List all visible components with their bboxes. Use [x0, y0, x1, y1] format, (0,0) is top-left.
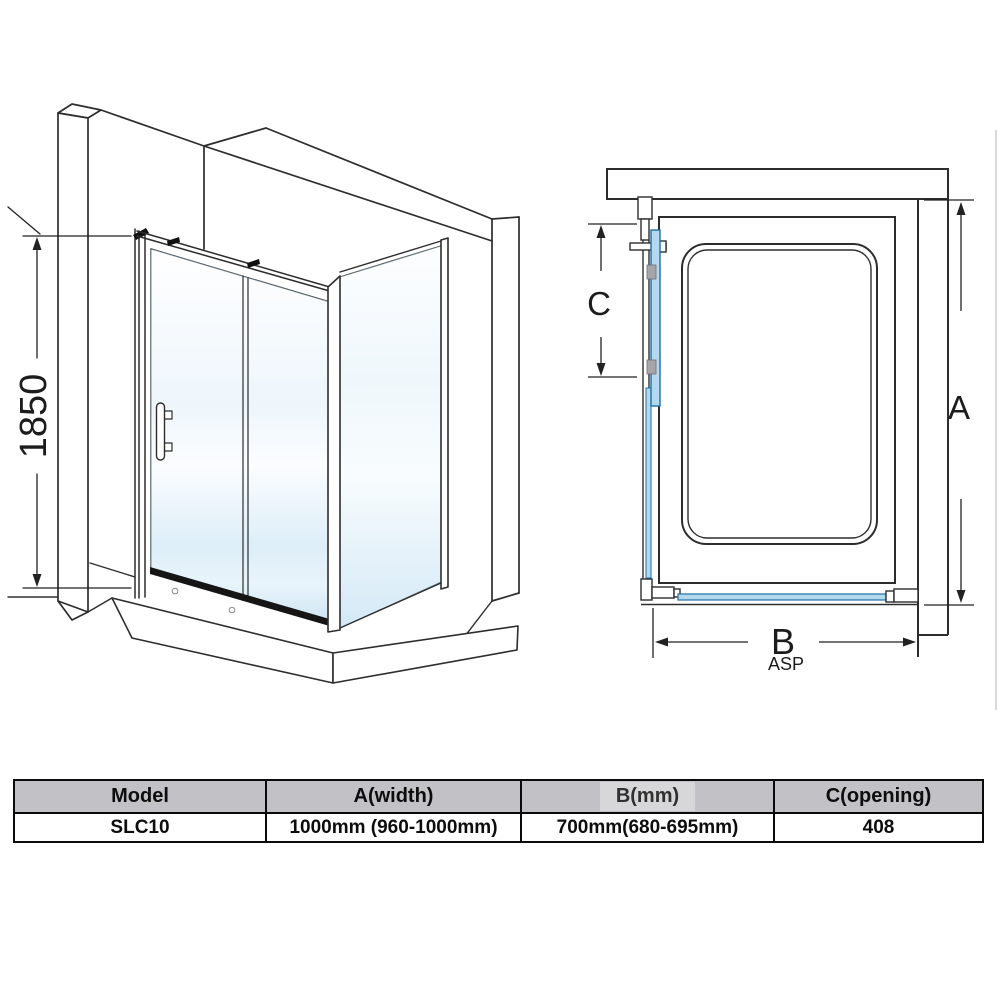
page-edge-line [995, 130, 997, 710]
a-dimension-label: A [948, 389, 970, 426]
header-b-mm: B(mm) [521, 780, 774, 813]
asp-label: ASP [768, 654, 804, 674]
arrow-right-icon [903, 638, 916, 647]
dim-tick-diagonal [8, 207, 40, 234]
plan-right-wall [918, 199, 948, 657]
arrow-up-icon [957, 202, 966, 215]
shower-enclosure-spec-sheet: 1850 [0, 0, 1001, 1001]
arrow-down-icon [597, 363, 606, 376]
arrow-up-icon [597, 225, 606, 238]
left-wall-column [58, 104, 101, 620]
spec-table: Model A(width) B(mm) C(opening) SLC10 10… [13, 779, 984, 843]
plan-enclosure-inner [659, 217, 895, 583]
cell-c-opening: 408 [774, 813, 983, 842]
plan-side-panel-glass [678, 594, 886, 600]
header-c-opening: C(opening) [774, 780, 983, 813]
arrow-down-icon [33, 574, 42, 587]
corner-post [328, 276, 340, 632]
perspective-view: 1850 [8, 104, 519, 683]
technical-drawing: 1850 [0, 0, 1001, 760]
arrow-up-icon [33, 237, 42, 250]
handle-bar [157, 403, 165, 460]
cell-a-width: 1000mm (960-1000mm) [266, 813, 521, 842]
cell-model: SLC10 [14, 813, 266, 842]
spec-table-header-row: Model A(width) B(mm) C(opening) [14, 780, 983, 813]
c-dimension-label: C [587, 285, 611, 322]
cell-b-mm: 700mm(680-695mm) [521, 813, 774, 842]
side-panel-glass [340, 246, 441, 628]
door-glass [151, 249, 333, 621]
side-panel-end-post [441, 238, 448, 589]
plan-top-wall [607, 169, 948, 199]
spec-table-data-row: SLC10 1000mm (960-1000mm) 700mm(680-695m… [14, 813, 983, 842]
plan-view: C A B ASP [587, 169, 974, 674]
door-wall-profile [135, 229, 151, 598]
arrow-down-icon [957, 590, 966, 603]
header-model: Model [14, 780, 266, 813]
arrow-left-icon [655, 638, 668, 647]
plan-sliding-door-glass [651, 230, 660, 406]
plan-side-panel-brackets [886, 589, 918, 602]
height-dimension-label: 1850 [13, 374, 55, 459]
header-a-width: A(width) [266, 780, 521, 813]
plan-fixed-panel-glass [646, 388, 651, 578]
